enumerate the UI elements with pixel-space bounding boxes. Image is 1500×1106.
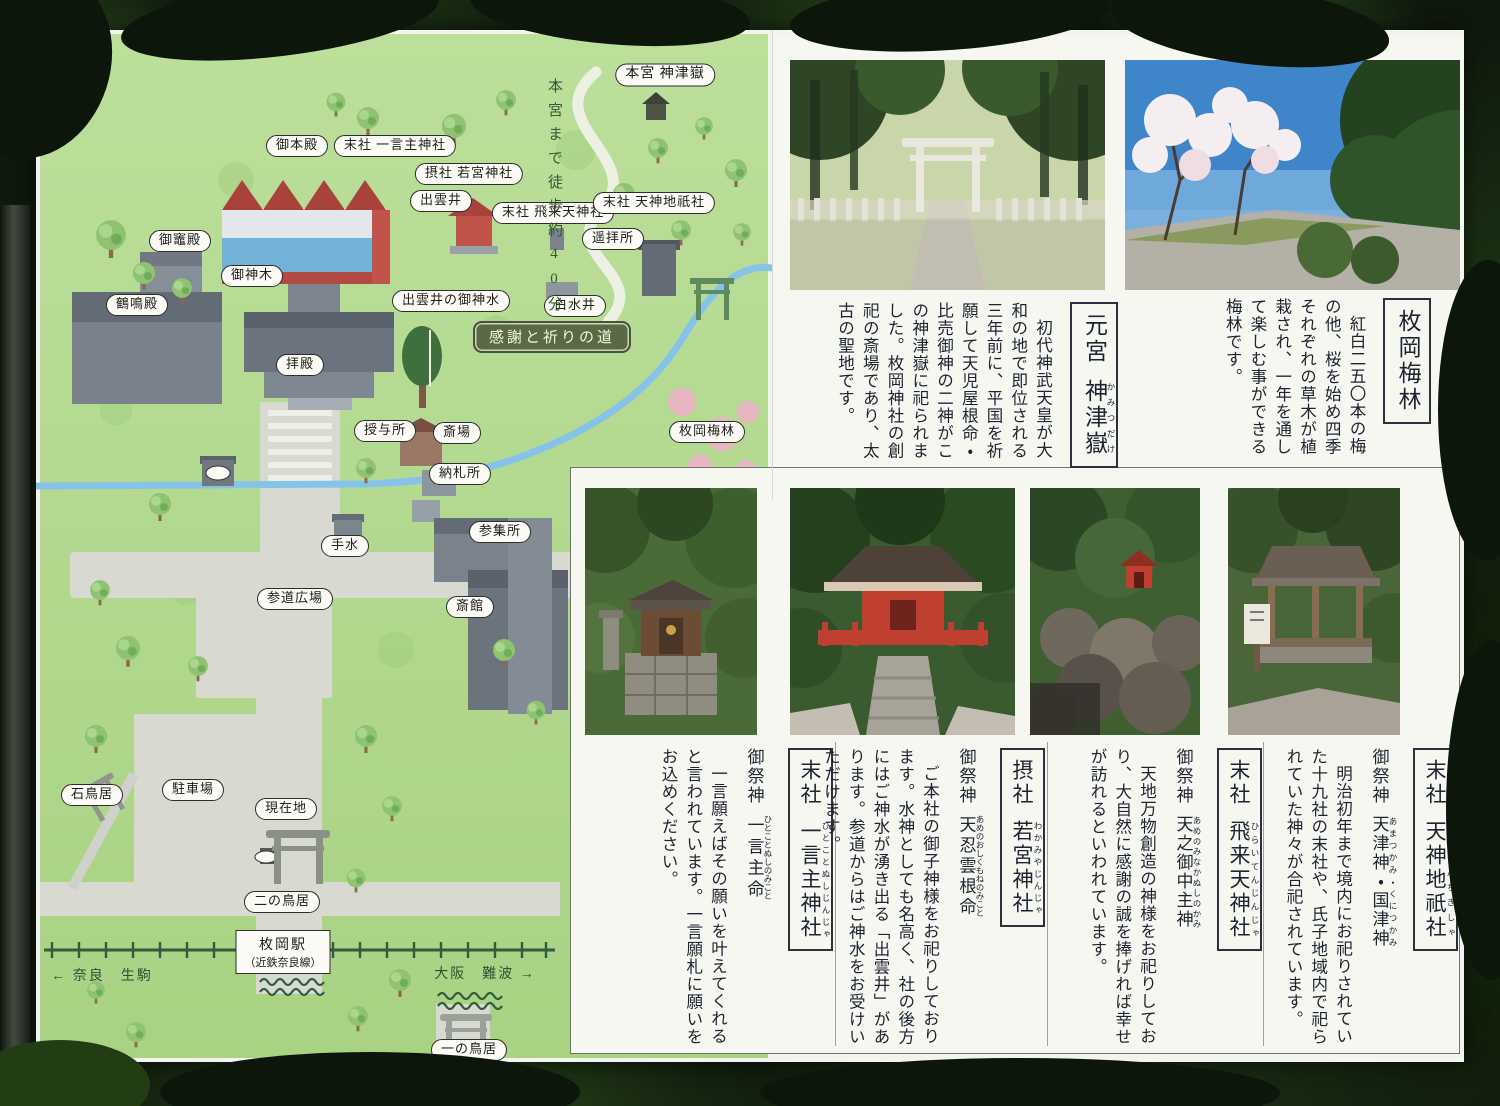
section-body: 一言願えばその願いを叶えてくれると言われています。一言願札に願いをお込めください… xyxy=(655,748,729,1048)
foliage-branch xyxy=(760,1058,1280,1106)
map-label-nousatsusho: 納札所 xyxy=(429,463,491,485)
map-label-sanshujo: 参集所 xyxy=(469,521,531,543)
title-prefix: 元宮 xyxy=(1082,313,1107,365)
deity-label: 御祭神 xyxy=(957,748,976,805)
direction-nara-ikoma: ← 奈良 生駒 xyxy=(51,965,153,985)
map-label-juyosho: 授与所 xyxy=(354,420,416,442)
map-label-honguu: 本宮 神津嶽 xyxy=(615,63,715,86)
section-body: ご本社の御子神様をお祀りしております。水神としても名高く、社の後方にはご神水が湧… xyxy=(818,748,942,1048)
section-motomiya-kamitsudake: 元宮神津嶽かみつだけ 初代神武天皇が大和の地で即位される三年前に、平国を祈願して… xyxy=(788,302,1118,470)
title-name: 若宮神社 xyxy=(1010,820,1034,916)
map-label-haiden: 拝殿 xyxy=(276,354,324,376)
deity-line: 御祭神天津神・国津神あまつかみ・くにつかみ xyxy=(1367,748,1399,948)
board-fold-line xyxy=(772,30,773,500)
map-label-ni-no-torii: 二の鳥居 xyxy=(244,891,320,913)
deity-label: 御祭神 xyxy=(1174,748,1193,805)
deity-label: 御祭神 xyxy=(1370,748,1389,805)
walk-time-note: 本宮まで徒歩約40分 xyxy=(544,78,565,320)
deity-furigana: あめのみなかぬしのかみ xyxy=(1192,815,1202,929)
map-label-izumoi: 出雲井 xyxy=(410,190,472,212)
deity-furigana: ひとことぬしのみこと xyxy=(763,815,773,900)
section-body: 天地万物創造の神様をお祀りしており、大自然に感謝の誠を捧げれば幸せが訪れるといわ… xyxy=(1084,748,1158,1048)
map-label-sessha-wakamiya: 摂社 若宮神社 xyxy=(415,163,523,185)
section-wakamiya: 摂社若宮神社わかみやじんじゃ 御祭神天忍雲根命あめのおしくもねのみこと ご本社の… xyxy=(833,748,1045,1048)
section-hiraitenjin: 末社飛来天神社ひらいてんじんじゃ 御祭神天之御中主神あめのみなかぬしのかみ 天地… xyxy=(1045,748,1262,1048)
photo-wakamiya-shrine xyxy=(790,488,1015,735)
title-name: 神津嶽 xyxy=(1082,379,1107,457)
title-prefix: 摂社 xyxy=(1010,759,1034,807)
section-tenjinchigi: 末社天神地祇社てんしんちぎしゃ 御祭神天津神・国津神あまつかみ・くにつかみ 明治… xyxy=(1262,748,1458,1048)
deity-name: 一言主命 xyxy=(745,815,764,900)
photo-kamitsudake-torii xyxy=(790,60,1105,290)
section-title-bairin: 枚岡梅林 xyxy=(1383,298,1431,424)
shrine-information-board: 枚岡駅 （近鉄奈良線） ← 奈良 生駒 大阪 難波 → 本宮 神津嶽 御本殿 末… xyxy=(36,30,1464,1062)
title-name: 飛来天神社 xyxy=(1227,820,1251,940)
map-label-temizu: 手水 xyxy=(321,535,369,557)
title-furigana: かみつだけ xyxy=(1106,379,1116,457)
map-label-youhaijo: 遥拝所 xyxy=(582,228,644,250)
station-name: 枚岡駅 xyxy=(245,934,322,954)
deity-line: 御祭神天忍雲根命あめのおしくもねのみこと xyxy=(954,748,986,917)
gratitude-path-badge: 感謝と祈りの道 xyxy=(473,321,631,353)
map-label-mikamadoden: 御竈殿 xyxy=(149,230,211,252)
deity-label: 御祭神 xyxy=(745,748,764,805)
title-prefix: 末社 xyxy=(1227,759,1251,807)
section-hitokotonushi: 末社一言主神社ひとことぬしじんじゃ 御祭神一言主命ひとことぬしのみこと 一言願え… xyxy=(578,748,833,1048)
deity-name: 天之御中主神 xyxy=(1174,815,1193,929)
title-name: 天神地祇社 xyxy=(1423,820,1447,940)
map-label-sando-hiroba: 参道広場 xyxy=(257,588,333,610)
deity-line: 御祭神天之御中主神あめのみなかぬしのかみ xyxy=(1171,748,1203,929)
section-body: 初代神武天皇が大和の地で即位される三年前に、平国を祈願して天児屋根命・比売御神の… xyxy=(832,302,1055,470)
station-line: （近鉄奈良線） xyxy=(245,954,322,970)
map-label-saijou: 斎場 xyxy=(433,422,481,444)
deity-name: 天津神・国津神 xyxy=(1370,815,1389,948)
photo-of-shrine-guide-board: 枚岡駅 （近鉄奈良線） ← 奈良 生駒 大阪 難波 → 本宮 神津嶽 御本殿 末… xyxy=(0,0,1500,1106)
map-label-ishitorii: 石鳥居 xyxy=(61,784,123,806)
photo-izumoi-spring-shrine xyxy=(1030,488,1200,735)
section-body: 紅白二五〇本の梅の他、桜を始め四季それぞれの草木が植栽され、一年を通して楽しむ事… xyxy=(1220,298,1369,463)
signboard-support-pole xyxy=(0,205,30,1106)
map-label-genzaichi: 現在地 xyxy=(255,798,317,820)
photo-tenjinchigi-shrine xyxy=(1228,488,1400,735)
station-sign: 枚岡駅 （近鉄奈良線） xyxy=(236,930,331,974)
deity-line: 御祭神一言主命ひとことぬしのみこと xyxy=(742,748,774,900)
direction-osaka-namba: 大阪 難波 → xyxy=(434,963,536,983)
section-title-wakamiya: 摂社若宮神社わかみやじんじゃ xyxy=(1000,748,1045,927)
map-label-gohonden: 御本殿 xyxy=(266,135,328,157)
title-furigana: ひらいてんじんじゃ xyxy=(1250,820,1260,940)
section-body: 明治初年まで境内にお祀りされていた十九社の末社や、氏子地域内で祀られていた神々が… xyxy=(1280,748,1354,1048)
map-label-goshinboku: 御神木 xyxy=(221,265,283,287)
section-title-hiraitenjin: 末社飛来天神社ひらいてんじんじゃ xyxy=(1217,748,1262,951)
map-label-kakumeiden: 鶴鳴殿 xyxy=(106,294,168,316)
map-label-massha-tenjinchigi: 末社 天神地祇社 xyxy=(593,192,715,214)
map-label-hiraoka-bairin: 枚岡梅林 xyxy=(669,421,745,443)
title-prefix: 末社 xyxy=(1423,759,1447,807)
deity-furigana: あまつかみ・くにつかみ xyxy=(1388,815,1398,948)
photo-hitokotonushi-shrine xyxy=(585,488,757,735)
section-hiraoka-bairin: 枚岡梅林 紅白二五〇本の梅の他、桜を始め四季それぞれの草木が植栽され、一年を通し… xyxy=(1131,298,1431,463)
photo-hiraoka-plum-grove xyxy=(1125,60,1460,290)
map-label-massha-hitokotonushi: 末社 一言主神社 xyxy=(334,135,456,157)
title-name: 枚岡梅林 xyxy=(1395,309,1420,413)
title-furigana: わかみやじんじゃ xyxy=(1033,820,1043,916)
map-label-chushajo: 駐車場 xyxy=(162,779,224,801)
section-title-kamitsudake: 元宮神津嶽かみつだけ xyxy=(1070,302,1119,468)
deity-furigana: あめのおしくもねのみこと xyxy=(975,815,985,917)
map-label-saikan: 斎館 xyxy=(446,596,494,618)
deity-name: 天忍雲根命 xyxy=(957,815,976,917)
map-label-izumoi-goshinsui: 出雲井の御神水 xyxy=(392,290,510,312)
